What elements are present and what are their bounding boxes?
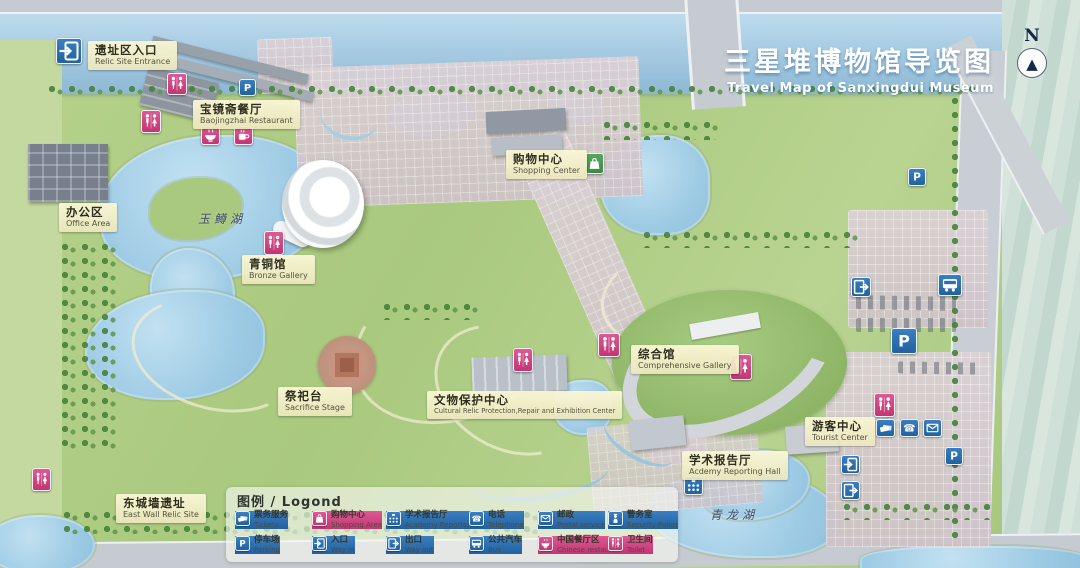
place-label: 学术报告厅 Acdemy Reporting Hall (682, 451, 788, 480)
legend-item-text: 票务服务 Tickets (254, 511, 288, 529)
legend-label-en: Toilet (627, 546, 653, 554)
legend-label-en: Way out (405, 546, 434, 554)
legend-item: 停车场 Parking (235, 536, 280, 554)
legend-label-zh: 停车场 (254, 536, 280, 546)
place-name-zh: 东城墙遗址 (123, 496, 199, 510)
legend-header: 图例 / Logond (237, 491, 342, 510)
legend-item-text: 邮政 Postal service (557, 511, 605, 529)
legend-label-zh: 入口 (331, 536, 355, 546)
legend-item: 邮政 Postal service (538, 511, 605, 529)
academy-hall-building (629, 415, 687, 451)
water-southeast-corner (860, 546, 1080, 568)
tree-cluster-center (380, 300, 480, 320)
lake-name: 青龙湖 (710, 506, 758, 523)
legend-label-en: Parking (254, 546, 280, 554)
place-name-en: Comprehensive Gallery (638, 361, 732, 371)
tree-row-southeast (840, 500, 990, 520)
place-name-zh: 学术报告厅 (689, 453, 781, 467)
legend-label-en: Tickets (254, 521, 288, 529)
place-label: 综合馆 Comprehensive Gallery (631, 345, 739, 374)
place-name-zh: 游客中心 (812, 419, 868, 433)
place-name-en: Tourist Center (812, 433, 868, 443)
place-name-en: Baojingzhai Restaurant (200, 116, 293, 126)
place-label: 祭祀台 Sacrifice Stage (278, 387, 352, 416)
legend-item-text: 卫生间 Toilet (627, 536, 653, 554)
map-title-en: Travel Map of Sanxingdui Museum (724, 81, 994, 96)
tickets-icon (235, 511, 250, 526)
place-name-en: Acdemy Reporting Hall (689, 467, 781, 477)
mail-icon (538, 511, 553, 526)
legend-item-text: 警务室 Security Police (627, 511, 678, 529)
office-area-buildings (28, 144, 108, 202)
legend-label-zh: 购物中心 (331, 511, 382, 521)
door-in-icon (841, 455, 860, 474)
map-title: 三星堆博物馆导览图 Travel Map of Sanxingdui Museu… (724, 40, 994, 96)
phone-icon (469, 511, 484, 526)
door-in-icon (56, 38, 82, 64)
parking-icon (908, 168, 926, 186)
shopping-center-building (485, 108, 566, 134)
sanxingdui-museum-map: 三星堆博物馆导览图 Travel Map of Sanxingdui Museu… (0, 0, 1080, 568)
legend-label-en: Security Police (627, 521, 678, 529)
parked-cars-row (898, 361, 978, 374)
place-name-zh: 青铜馆 (249, 257, 308, 271)
place-name-zh: 办公区 (66, 205, 110, 219)
toilet-icon (608, 536, 623, 551)
place-name-en: Sacrifice Stage (285, 403, 345, 413)
legend-label-zh: 票务服务 (254, 511, 288, 521)
place-label: 游客中心 Tourist Center (805, 417, 875, 446)
lake-name-text: 玉鳟湖 (198, 212, 246, 226)
legend-item-text: 公共汽车 Bus (488, 536, 522, 554)
toilet-icon (264, 231, 284, 255)
place-name-zh: 文物保护中心 (434, 393, 615, 407)
legend-item: 票务服务 Tickets (235, 511, 288, 529)
place-name-en: Shopping Center (513, 166, 580, 176)
toilet-icon (32, 468, 51, 491)
police-icon (608, 511, 623, 526)
place-name-zh: 祭祀台 (285, 389, 345, 403)
legend-item: 出口 Way out (386, 536, 434, 554)
door-out-icon (851, 277, 871, 297)
place-name-en: Office Area (66, 219, 110, 229)
academy-icon (386, 511, 401, 526)
northeast-parking-plaza (848, 210, 988, 328)
legend-label-zh: 邮政 (557, 511, 605, 521)
place-label: 东城墙遗址 East Wall Relic Site (116, 494, 206, 523)
bus-icon (469, 536, 484, 551)
bronze-gallery-building (282, 160, 364, 248)
legend-label-zh: 公共汽车 (488, 536, 522, 546)
place-label: 宝镜斋餐厅 Baojingzhai Restaurant (193, 100, 300, 129)
bowl-icon (538, 536, 553, 551)
lake-name-text: 青龙湖 (710, 508, 758, 522)
parking-icon (235, 536, 250, 551)
legend-label-en: Way in (331, 546, 355, 554)
toilet-icon (141, 110, 161, 133)
north-road (0, 0, 1080, 14)
parking-icon (891, 328, 917, 354)
sacrifice-stage-top (340, 358, 354, 372)
legend-label-en: Bus (488, 546, 522, 554)
parking-icon (239, 79, 256, 96)
place-name-en: East Wall Relic Site (123, 510, 199, 520)
legend-item: 卫生间 Toilet (608, 536, 653, 554)
lake-name: 玉鳟湖 (198, 210, 246, 227)
place-label: 遗址区入口 Relic Site Entrance (88, 41, 177, 70)
legend-label-zh: 出口 (405, 536, 434, 546)
legend-label-en: Telephone (488, 521, 524, 529)
door-out-icon (386, 536, 401, 551)
toilet-icon (598, 333, 620, 357)
legend-label-zh: 警务室 (627, 511, 678, 521)
place-name-en: Cultural Relic Protection,Repair and Exh… (434, 407, 615, 415)
legend-item: 警务室 Security Police (608, 511, 678, 529)
legend-item-text: 购物中心 Shopping Area (331, 511, 382, 529)
legend-item: 电话 Telephone (469, 511, 524, 529)
door-out-icon (841, 481, 860, 500)
tree-row-east-road (948, 80, 960, 540)
legend-item: 入口 Way in (312, 536, 355, 554)
place-name-zh: 综合馆 (638, 347, 732, 361)
parked-cars-row (856, 295, 956, 311)
tickets-icon (876, 419, 895, 437)
toilet-icon (513, 348, 533, 372)
legend-label-zh: 卫生间 (627, 536, 653, 546)
place-label: 办公区 Office Area (59, 203, 117, 232)
legend-label-en: Postal service (557, 521, 605, 529)
phone-icon (900, 419, 919, 437)
legend-item-text: 入口 Way in (331, 536, 355, 554)
legend-panel: 图例 / Logond 票务服务 Tickets 购物中心 Shopping A… (226, 487, 678, 562)
farm-fields-right (1002, 0, 1080, 568)
bus-icon (938, 274, 962, 296)
compass-arrow-icon (1026, 54, 1038, 73)
place-name-zh: 遗址区入口 (95, 43, 170, 57)
parking-icon (945, 447, 963, 465)
legend-label-zh: 电话 (488, 511, 524, 521)
toilet-icon (167, 73, 187, 95)
tree-row-lake-northeast (600, 118, 720, 140)
place-name-en: Bronze Gallery (249, 271, 308, 281)
door-in-icon (312, 536, 327, 551)
bag-icon (585, 153, 604, 174)
legend-item: 购物中心 Shopping Area (312, 511, 382, 529)
map-title-zh: 三星堆博物馆导览图 (724, 40, 994, 79)
place-label: 购物中心 Shopping Center (506, 150, 587, 179)
place-label: 文物保护中心 Cultural Relic Protection,Repair … (427, 391, 622, 419)
toilet-icon (874, 393, 895, 417)
legend-label-en: Shopping Area (331, 521, 382, 529)
tree-cluster-west (58, 240, 118, 450)
west-fields (0, 40, 62, 540)
bag-icon (312, 511, 327, 526)
legend-item: 公共汽车 Bus (469, 536, 522, 554)
legend-item-text: 停车场 Parking (254, 536, 280, 554)
place-name-zh: 宝镜斋餐厅 (200, 102, 293, 116)
tree-row-mound-north (640, 228, 860, 248)
place-label: 青铜馆 Bronze Gallery (242, 255, 315, 284)
place-name-zh: 购物中心 (513, 152, 580, 166)
compass: N (1014, 26, 1050, 78)
compass-north-label: N (1014, 26, 1050, 46)
place-name-en: Relic Site Entrance (95, 57, 170, 67)
legend-item-text: 出口 Way out (405, 536, 434, 554)
legend-item-text: 电话 Telephone (488, 511, 524, 529)
mail-icon (923, 419, 942, 437)
compass-circle (1017, 48, 1047, 78)
